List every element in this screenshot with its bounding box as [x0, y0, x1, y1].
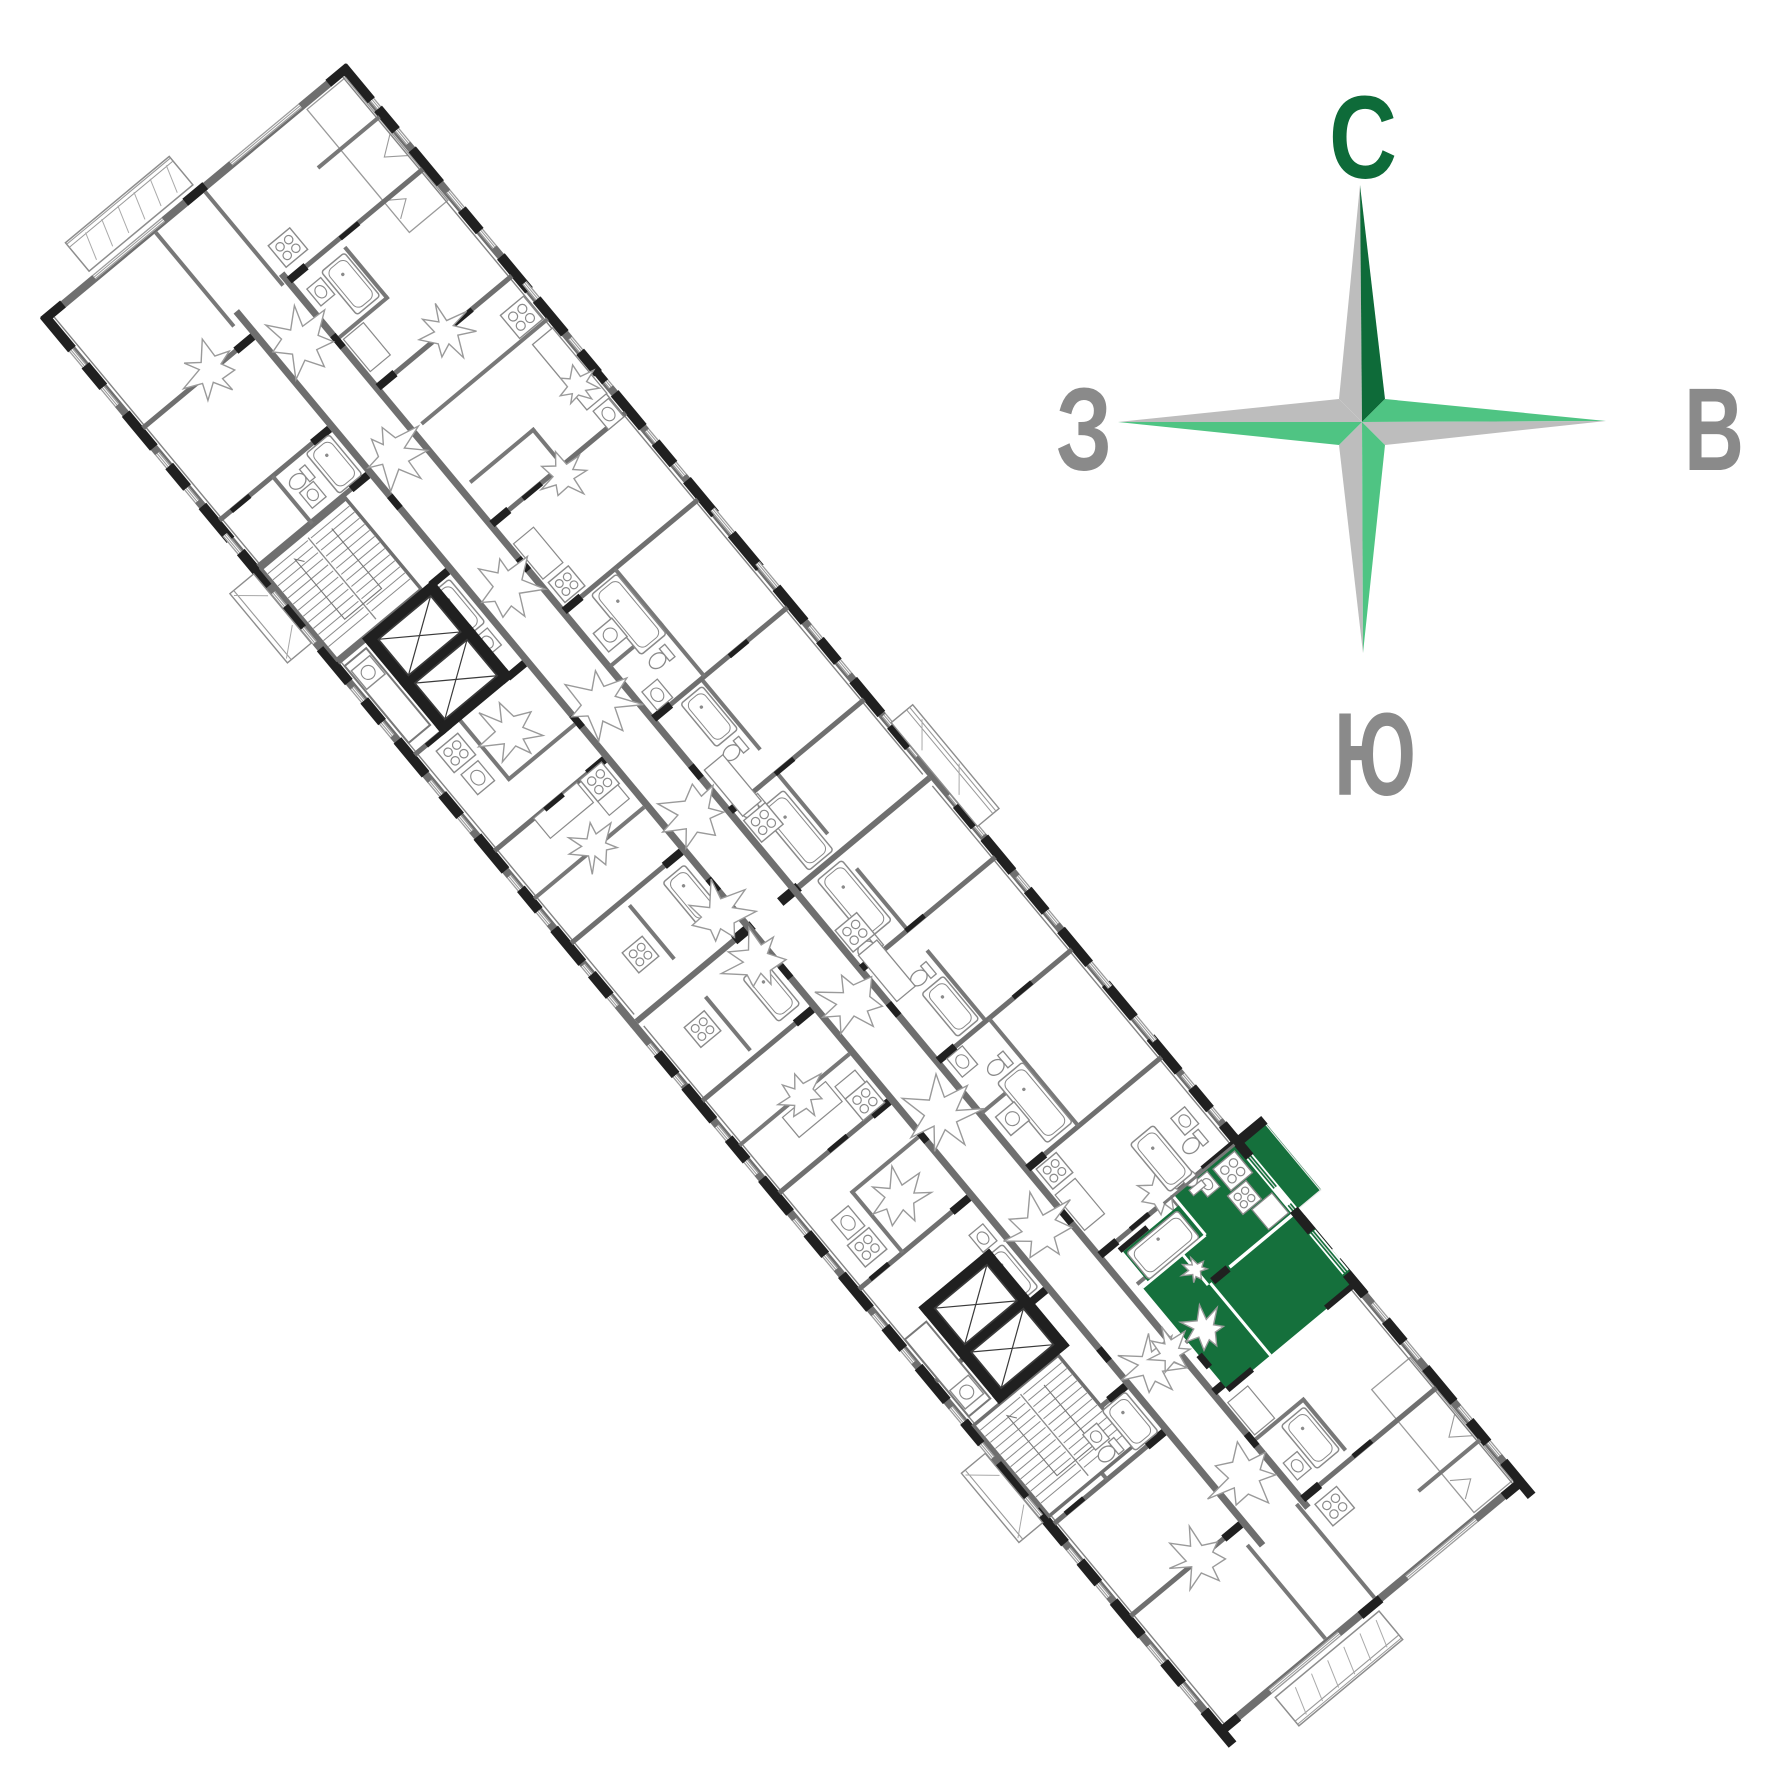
svg-text:В: В [1684, 364, 1744, 496]
svg-text:З: З [1056, 364, 1112, 496]
svg-text:Ю: Ю [1334, 689, 1416, 821]
svg-text:С: С [1329, 72, 1397, 204]
